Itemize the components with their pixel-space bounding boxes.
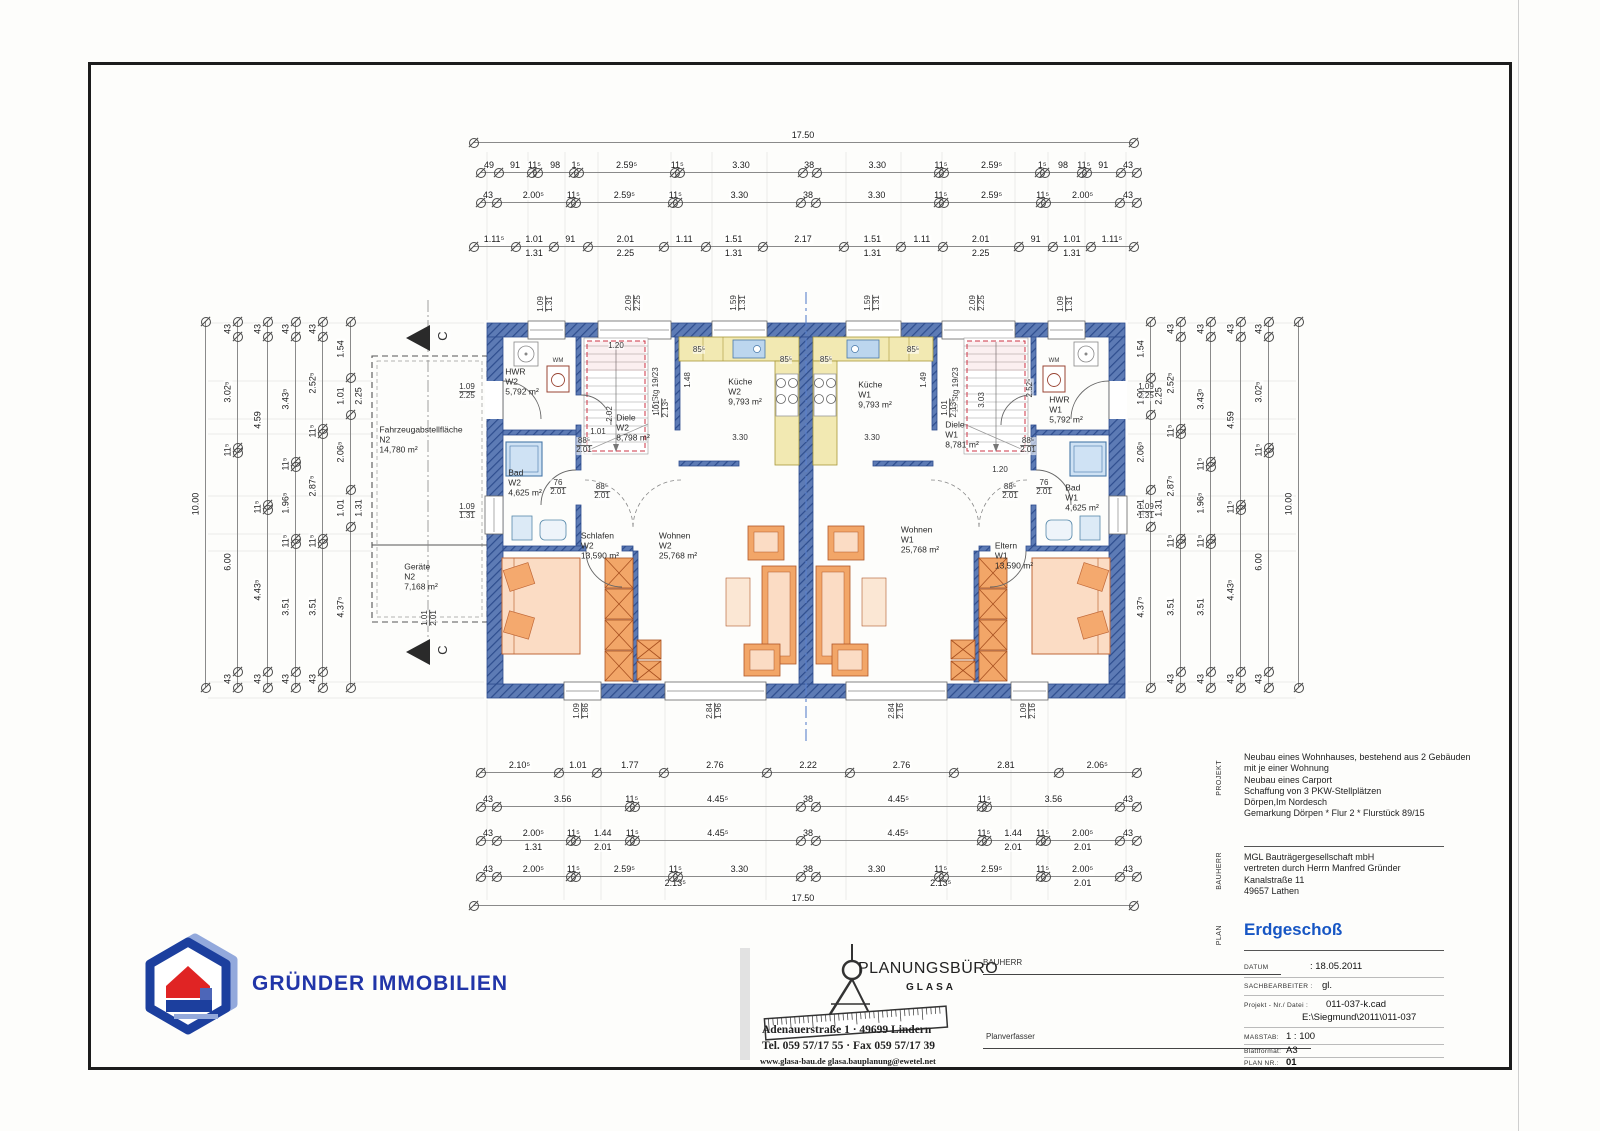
dim-tick (476, 802, 486, 812)
dim-label: 1.54 (1137, 339, 1146, 359)
dim-label: 91 (509, 161, 521, 170)
dim-label: 11⁵ (1255, 442, 1264, 457)
dim-label: 6.00 (224, 552, 233, 572)
dim-tick (1041, 872, 1051, 882)
stamp-address: Adenauerstraße 1 · 49699 Lindern (762, 1024, 931, 1036)
dim-tick (811, 198, 821, 208)
dim-tick (554, 768, 564, 778)
stamp-phone: Tel. 059 57/17 55 · Fax 059 57/17 39 (762, 1040, 935, 1052)
dim-tick (233, 683, 243, 693)
dim-tick (758, 242, 768, 252)
dim-label: 43 (1255, 323, 1264, 335)
dim-label: 6.00 (1255, 552, 1264, 572)
dim-label: 2.81 (996, 761, 1016, 770)
dim-label: 17.50 (791, 894, 816, 903)
dim-label: 4.45⁵ (886, 829, 909, 838)
plan-annotation: 1.091.31 (459, 503, 475, 521)
projektnr-value: 011-037-k.cad (1326, 999, 1386, 1010)
dim-tick (549, 242, 559, 252)
dim-label: 2.10⁵ (508, 761, 531, 770)
room-label: WohnenW225,768 m² (659, 531, 697, 562)
plan-annotation: 1.092.25 (459, 383, 475, 401)
dim-chain-line (1298, 321, 1299, 687)
logo-wordmark: GRÜNDER IMMOBILIEN (252, 972, 508, 996)
dim-tick (469, 901, 479, 911)
plan-annotation: 3.03 (978, 392, 986, 408)
dim-tick (811, 836, 821, 846)
room-label: GeräteN27,168 m² (404, 562, 438, 593)
dim-label: 10.00 (1285, 492, 1294, 517)
dim-tick (233, 317, 243, 327)
plan-annotation: 1.48 (684, 372, 692, 388)
room-label: KücheW19,793 m² (858, 380, 892, 411)
dim-label: 2.00⁵ (1071, 865, 1094, 874)
dim-label: 43 (1227, 323, 1236, 335)
dim-tick (233, 448, 243, 458)
dim-label: 2.59⁵ (980, 865, 1003, 874)
dim-tick (1129, 138, 1139, 148)
dim-tick (346, 317, 356, 327)
dim-tick (571, 872, 581, 882)
dim-label: 4.59 (1227, 411, 1236, 431)
dim-label: 2.00⁵ (522, 829, 545, 838)
dim-tick (346, 410, 356, 420)
stamp-firm-sub: GLASA (906, 982, 956, 993)
dim-label: 1.44 (593, 829, 613, 838)
dim-tick (318, 683, 328, 693)
room-label: HWRW15,792 m² (1049, 395, 1083, 426)
dim-label: 43 (254, 673, 263, 685)
plan-annotation: 2.02 (606, 406, 614, 422)
dim-tick (1132, 768, 1142, 778)
room-label: DieleW18,781 m² (945, 420, 979, 451)
plan-annotation: 88⁵2.01 (1002, 483, 1018, 501)
dim-label: 3.51 (309, 598, 318, 618)
dim-label: 1.44 (1003, 829, 1023, 838)
dim-tick (1176, 317, 1186, 327)
dim-tick (1264, 448, 1274, 458)
plan-annotation: 1.01 (590, 428, 606, 436)
plan-annotation: 1.092.25 (1138, 383, 1154, 401)
dim-label: 3.30 (730, 865, 750, 874)
dim-label: 43 (1167, 323, 1176, 335)
dim-tick (291, 667, 301, 677)
dim-label: 1.31 (1155, 499, 1164, 519)
dim-tick (201, 317, 211, 327)
plan-annotation: 1.012.13⁵ (941, 399, 959, 418)
dim-tick (938, 242, 948, 252)
dim-tick (476, 198, 486, 208)
dim-label: 2.76 (705, 761, 725, 770)
dim-label: 43 (224, 323, 233, 335)
dim-label: 1.01 (568, 761, 588, 770)
dim-tick (1264, 667, 1274, 677)
dim-tick (1040, 168, 1050, 178)
dim-tick (1176, 429, 1186, 439)
dim-label: 3.30 (868, 161, 888, 170)
dim-label: 4.45⁵ (887, 795, 910, 804)
dim-chain-line (205, 321, 206, 687)
dim-label: 3.02⁵ (1255, 380, 1264, 403)
dim-label: 2.59⁵ (980, 191, 1003, 200)
dim-tick (659, 768, 669, 778)
dim-tick (1206, 317, 1216, 327)
dim-tick (839, 242, 849, 252)
dim-chain-line (480, 772, 1136, 773)
bauherr-signature-line (983, 974, 1281, 975)
plan-annotation: 85⁵ (693, 346, 705, 354)
dim-tick (263, 667, 273, 677)
dim-tick (1236, 667, 1246, 677)
dim-tick (1264, 332, 1274, 342)
dim-label: 2.00⁵ (522, 865, 545, 874)
dim-label: 4.37⁵ (337, 595, 346, 618)
dim-label: 3.43⁵ (282, 388, 291, 411)
dim-label: 11⁵ (224, 442, 233, 457)
dim-tick (673, 198, 683, 208)
dim-label: 4.43⁵ (254, 579, 263, 602)
datum-label: DATUM (1244, 964, 1268, 971)
dim-tick (811, 872, 821, 882)
stamp-firm-name: PLANUNGSBÜRO (858, 960, 998, 978)
dim-label: 1.11⁵ (483, 235, 506, 244)
dim-label: 2.22 (798, 761, 818, 770)
plan-annotation: WM (1049, 358, 1060, 364)
projektnr-label: Projekt - Nr./ Datei : (1244, 1002, 1308, 1009)
dim-tick (476, 836, 486, 846)
dim-tick (511, 242, 521, 252)
dim-tick (263, 683, 273, 693)
dim-tick (1294, 683, 1304, 693)
dim-tick (1014, 242, 1024, 252)
dim-label: 43 (1167, 673, 1176, 685)
dim-tick (982, 836, 992, 846)
dim-label: 2.25 (1155, 386, 1164, 406)
tb-row-line (1244, 995, 1444, 996)
dim-tick (812, 168, 822, 178)
dim-label: 43 (254, 323, 263, 335)
dim-tick (1176, 332, 1186, 342)
dim-tick (318, 317, 328, 327)
dim-chain-line (473, 142, 1133, 143)
dim-tick (492, 872, 502, 882)
dim-label: 91 (1097, 161, 1109, 170)
dim-label: 43 (1197, 673, 1206, 685)
room-label: HWRW25,792 m² (505, 367, 539, 398)
dim-label: 1.01 (337, 499, 346, 519)
dim-tick (939, 168, 949, 178)
dim-tick (492, 836, 502, 846)
dim-label: 11⁵ (309, 424, 318, 439)
plan-annotation: 1.091.31 (1138, 503, 1154, 521)
plan-annotation: 3.30 (864, 434, 880, 442)
dim-label: 1.51 (863, 235, 883, 244)
dim-tick (583, 242, 593, 252)
dim-tick (1264, 317, 1274, 327)
dim-tick (1115, 872, 1125, 882)
dim-label: 43 (282, 673, 291, 685)
dim-tick (675, 168, 685, 178)
dim-label: 11⁵ (282, 457, 291, 472)
stamp-side-bar (740, 948, 750, 1060)
dim-tick (1176, 539, 1186, 549)
dim-tick (233, 667, 243, 677)
dim-tick (263, 317, 273, 327)
dim-tick (492, 198, 502, 208)
dim-tick (571, 198, 581, 208)
dim-tick (1236, 683, 1246, 693)
dim-tick (1115, 802, 1125, 812)
dim-tick (949, 768, 959, 778)
dim-tick (346, 683, 356, 693)
dim-tick (630, 836, 640, 846)
dim-label: 2.01 (1073, 879, 1093, 888)
plan-annotation: 88⁵2.01 (576, 437, 592, 455)
dim-label: 3.56 (553, 795, 573, 804)
dim-label: 2.59⁵ (615, 161, 638, 170)
tb-separator (1244, 846, 1444, 847)
dim-label: 2.01 (1073, 843, 1093, 852)
dim-label: 3.51 (282, 598, 291, 618)
dim-label: 2.59⁵ (613, 191, 636, 200)
tb-row-line (1244, 1057, 1444, 1058)
dim-tick (1086, 242, 1096, 252)
dim-label: 2.87⁵ (1167, 474, 1176, 497)
dim-tick (1176, 683, 1186, 693)
dim-tick (1132, 872, 1142, 882)
room-label: BadW24,625 m² (508, 468, 542, 499)
dim-label: 2.52⁵ (1167, 371, 1176, 394)
dim-tick (796, 802, 806, 812)
plan-annotation: 2.092.25 (625, 295, 643, 311)
dim-tick (673, 872, 683, 882)
dim-label: 17.50 (791, 131, 816, 140)
dim-label: 11⁵ (309, 533, 318, 548)
dim-tick (291, 462, 301, 472)
dim-label: 2.25 (355, 386, 364, 406)
dim-label: 2.17 (793, 235, 813, 244)
dim-label: 2.25 (616, 249, 636, 258)
dim-chain-line (237, 321, 238, 687)
dim-label: 1.96⁵ (1197, 491, 1206, 514)
dim-tick (1115, 836, 1125, 846)
plan-annotation: 1.49 (920, 372, 928, 388)
dim-label: 2.01 (971, 235, 991, 244)
plan-annotation: 85⁵ (820, 356, 832, 364)
sachbearbeiter-value: gl. (1322, 980, 1332, 991)
massstab-value: 1 : 100 (1286, 1031, 1315, 1042)
dim-tick (1146, 485, 1156, 495)
planverfasser-signature-label: Planverfasser (986, 1032, 1035, 1041)
plan-annotation: 1.091.31 (537, 296, 555, 312)
dim-tick (469, 242, 479, 252)
dim-label: 43 (282, 323, 291, 335)
plan-annotation: 1.20 (608, 342, 624, 350)
dim-tick (659, 242, 669, 252)
dim-label: 10.00 (192, 492, 201, 517)
dim-label: 1.01 (524, 235, 544, 244)
dim-tick (1041, 836, 1051, 846)
plan-annotation: 2.092.25 (969, 295, 987, 311)
plan-annotation: 2.841.96 (706, 703, 724, 719)
carport-outline (372, 300, 487, 648)
plannr-label: PLAN NR.: (1244, 1060, 1279, 1067)
dim-chain-line (322, 321, 323, 687)
dim-label: 3.30 (730, 191, 750, 200)
blattformat-label: Blattformat: (1244, 1048, 1281, 1055)
room-label: FahrzeugabstellflächeN214,780 m² (379, 425, 462, 456)
room-label: ElternW113,590 m² (995, 541, 1033, 572)
dim-tick (796, 872, 806, 882)
dim-label: 43 (1255, 673, 1264, 685)
dim-label: 2.01 (593, 843, 613, 852)
dim-tick (1129, 242, 1139, 252)
massstab-label: MAßSTAB: (1244, 1034, 1279, 1041)
dim-label: 98 (549, 161, 561, 170)
dim-label: 1.31 (1062, 249, 1082, 258)
plan-annotation: 1.012.01 (421, 610, 439, 626)
dim-tick (1294, 317, 1304, 327)
dim-tick (1116, 168, 1126, 178)
dim-label: 91 (1030, 235, 1042, 244)
dim-label: 1.31 (724, 249, 744, 258)
dim-tick (1206, 332, 1216, 342)
stamp-web: www.glasa-bau.de glasa.bauplanung@ewetel… (760, 1056, 936, 1066)
datum-value: : 18.05.2011 (1310, 961, 1362, 972)
dim-label: 3.51 (1197, 598, 1206, 618)
dim-tick (1041, 198, 1051, 208)
dim-label: 2.87⁵ (309, 474, 318, 497)
dim-tick (630, 802, 640, 812)
dim-label: 1.51 (724, 235, 744, 244)
dim-chain-line (295, 321, 296, 687)
dim-label: 4.45⁵ (706, 795, 729, 804)
dim-label: 1.01 (337, 386, 346, 406)
dim-tick (571, 836, 581, 846)
dim-label: 3.51 (1167, 598, 1176, 618)
dim-tick (1206, 539, 1216, 549)
dim-tick (896, 242, 906, 252)
gruender-logo-icon (150, 938, 233, 1030)
room-label: DieleW28,798 m² (616, 413, 650, 444)
dim-tick (533, 168, 543, 178)
plan-annotation: 1.092.16 (1020, 703, 1038, 719)
dim-chain-line (473, 246, 1133, 247)
dim-tick (982, 802, 992, 812)
dim-label: 1.31 (524, 843, 544, 852)
dim-tick (1146, 683, 1156, 693)
dim-tick (492, 802, 502, 812)
dim-tick (1206, 462, 1216, 472)
dim-tick (318, 332, 328, 342)
dim-tick (1048, 242, 1058, 252)
dim-tick (263, 332, 273, 342)
sachbearbeiter-label: SACHBEARBEITER : (1244, 983, 1313, 990)
dim-label: 2.76 (892, 761, 912, 770)
dim-tick (939, 872, 949, 882)
dim-tick (346, 373, 356, 383)
dim-label: 1.31 (524, 249, 544, 258)
dim-label: 2.01 (616, 235, 636, 244)
bauherr-signature-label: BAUHERR (983, 958, 1022, 967)
dim-label: 2.06⁵ (1086, 761, 1109, 770)
tb-row-line (1244, 1027, 1444, 1028)
plan-title: Erdgeschoß (1244, 920, 1342, 940)
dim-tick (939, 198, 949, 208)
dim-tick (291, 317, 301, 327)
dim-label: 11⁵ (1197, 533, 1206, 548)
dim-label: 98 (1057, 161, 1069, 170)
dim-label: 43 (309, 673, 318, 685)
dim-label: 1.31 (863, 249, 883, 258)
dim-tick (762, 768, 772, 778)
dim-label: 11⁵ (1167, 533, 1176, 548)
dim-label: 4.37⁵ (1137, 595, 1146, 618)
plan-annotation: C (436, 645, 450, 654)
plan-annotation: 1.091.31 (1057, 296, 1075, 312)
dim-label: 2.06⁵ (337, 440, 346, 463)
room-label: SchlafenW213,590 m² (581, 531, 619, 562)
dim-tick (346, 485, 356, 495)
dim-label: 2.00⁵ (1071, 829, 1094, 838)
dim-tick (1176, 667, 1186, 677)
dim-tick (796, 198, 806, 208)
dim-label: 2.00⁵ (1071, 191, 1094, 200)
dim-tick (1132, 168, 1142, 178)
dim-label: 43 (1227, 673, 1236, 685)
dim-tick (1054, 768, 1064, 778)
plan-annotation: 2.842.16 (888, 703, 906, 719)
plan-annotation: 1.591.31 (864, 295, 882, 311)
dim-tick (469, 138, 479, 148)
dim-label: 1.11 (675, 235, 694, 244)
dim-tick (1146, 410, 1156, 420)
plan-rot-label: PLAN (1216, 925, 1223, 945)
room-label: KücheW29,793 m² (728, 377, 762, 408)
dim-label: 2.59⁵ (980, 161, 1003, 170)
plan-annotation: 1.591.31 (730, 295, 748, 311)
dim-tick (701, 242, 711, 252)
dim-tick (1115, 198, 1125, 208)
dim-label: 1.31 (355, 499, 364, 519)
dim-tick (1132, 836, 1142, 846)
dim-tick (201, 683, 211, 693)
dim-label: 1.54 (337, 339, 346, 359)
dim-tick (1082, 168, 1092, 178)
plan-annotation: 762.01 (1036, 479, 1052, 497)
dim-label: 2.06⁵ (1137, 440, 1146, 463)
dim-chain-line (473, 905, 1133, 906)
dim-label: 43 (1197, 323, 1206, 335)
dim-chain-line (1268, 321, 1269, 687)
plan-annotation: 1.091.86 (573, 703, 591, 719)
dim-tick (574, 168, 584, 178)
dim-label: 3.30 (867, 865, 887, 874)
tb-separator2 (1244, 950, 1444, 951)
dim-label: 2.01 (1003, 843, 1023, 852)
dim-label: 43 (309, 323, 318, 335)
dim-tick (1236, 505, 1246, 515)
dim-label: 3.02⁵ (224, 380, 233, 403)
bauherr-rot-label: BAUHERR (1216, 852, 1223, 890)
dim-tick (291, 332, 301, 342)
dim-label: 1.96⁵ (282, 491, 291, 514)
projekt-rot-label: PROJEKT (1216, 760, 1223, 796)
dim-tick (291, 539, 301, 549)
dim-tick (476, 768, 486, 778)
plan-annotation: 1.20 (992, 466, 1008, 474)
plan-annotation: 88⁵2.01 (1020, 437, 1036, 455)
